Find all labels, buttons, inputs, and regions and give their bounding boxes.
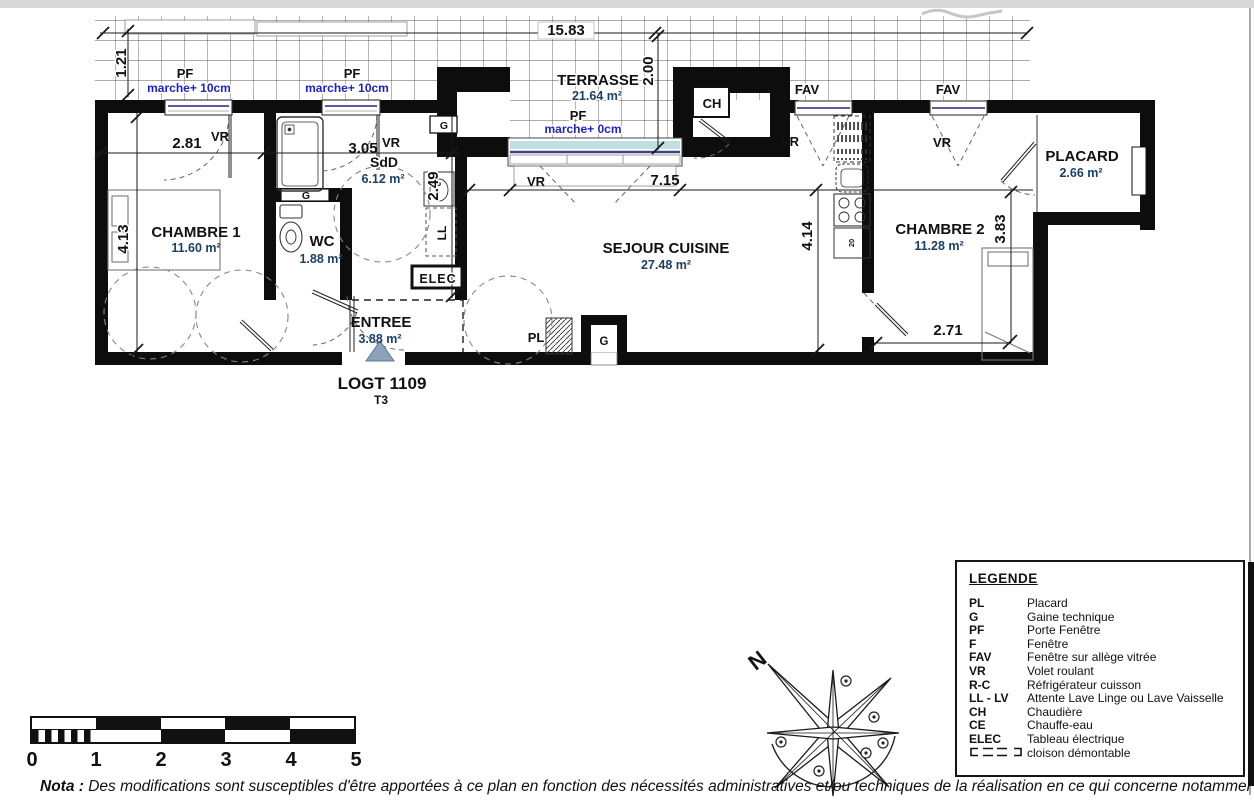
nota-text: Nota : Des modifications sont susceptibl… [40, 778, 1252, 796]
marche-note: marche+ 10cm [147, 81, 231, 95]
g-label: G [302, 190, 310, 202]
legend-item: R-CRéfrigérateur cuisson [969, 679, 1237, 693]
dim-7-15: 7.15 [650, 172, 679, 189]
scale-bar: 0 1 2 3 4 5 [30, 716, 356, 775]
room-name-terrasse: TERRASSE [557, 72, 639, 89]
scale-tick-label: 1 [90, 749, 101, 772]
north-label: N [743, 646, 771, 675]
room-name-chambre2: CHAMBRE 2 [895, 221, 984, 238]
pf-window-sdd [322, 100, 380, 115]
dim-2-00: 2.00 [640, 56, 657, 85]
hall-closet-hatch [546, 318, 572, 354]
fav-label: FAV [936, 82, 961, 97]
fav-label: FAV [795, 82, 820, 97]
legend-item: PFPorte Fenêtre [969, 624, 1237, 638]
pf-label: PF [570, 108, 587, 123]
legend-title: LEGENDE [969, 571, 1237, 586]
dim-4-14: 4.14 [799, 221, 816, 251]
shower-icon [277, 117, 323, 191]
legend-item: VRVolet roulant [969, 665, 1237, 679]
legend-item: FAVFenêtre sur allège vitrée [969, 651, 1237, 665]
room-name-wc: WC [310, 233, 335, 250]
dim-1-21: 1.21 [113, 48, 130, 77]
pf-label: PF [344, 66, 361, 81]
room-area-placard: 2.66 m² [1059, 166, 1102, 180]
pf-label: PF [177, 66, 194, 81]
pl-label: PL [528, 330, 545, 345]
room-area-sejour: 27.48 m² [641, 258, 691, 272]
legend-item: PLPlacard [969, 597, 1237, 611]
legend-item: CEChauffe-eau [969, 719, 1237, 733]
room-name-entree: ENTREE [351, 314, 412, 331]
scale-bar-strip [30, 716, 356, 744]
pf-window-chambre1 [165, 100, 232, 115]
legend-item: ELECTableau électrique [969, 733, 1237, 747]
dim-15-83: 15.83 [547, 22, 585, 39]
vr-label: VR [781, 134, 800, 149]
ch-label: CH [703, 96, 722, 111]
room-name-chambre1: CHAMBRE 1 [151, 224, 240, 241]
vr-label: VR [933, 135, 952, 150]
room-area-chambre1: 11.60 m² [171, 241, 220, 255]
floorplan-page: N CHAMBRE 1 11.60 m² WC 1.88 m² SdD 6.12… [0, 0, 1254, 800]
scale-tick-label: 4 [285, 749, 296, 772]
scale-tick-label: 0 [26, 749, 37, 772]
dim-4-13: 4.13 [115, 224, 132, 253]
vr-label: VR [382, 135, 401, 150]
marche-note: marche+ 10cm [305, 81, 389, 95]
room-name-sejour: SEJOUR CUISINE [603, 240, 730, 257]
compass-rose: N [743, 646, 899, 796]
legend-item: FFenêtre [969, 638, 1237, 652]
cloison-demontable-symbol [969, 747, 1027, 761]
room-area-entree: 3.88 m² [358, 332, 401, 346]
dim-2-71: 2.71 [933, 322, 962, 339]
legend-item: LL - LVAttente Lave Linge ou Lave Vaisse… [969, 692, 1237, 706]
dim-2-49: 2.49 [425, 171, 442, 200]
page-edge [1248, 8, 1254, 795]
g-label: G [440, 120, 448, 132]
fav-window-chambre2 [930, 101, 987, 115]
marche-note: marche+ 0cm [544, 122, 621, 136]
lot-type: T3 [374, 393, 388, 407]
room-area-sdd: 6.12 m² [361, 172, 404, 186]
lot-title: LOGT 1109 [338, 374, 427, 393]
scale-tick-label: 5 [350, 749, 361, 772]
room-area-terrasse: 21.64 m² [572, 89, 622, 103]
dim-3-05: 3.05 [348, 140, 377, 157]
scale-tick-label: 3 [220, 749, 231, 772]
legend-box: LEGENDE PLPlacard GGaine technique PFPor… [955, 560, 1245, 777]
elec-label: ELEC [419, 272, 456, 286]
dim-3-83: 3.83 [992, 214, 1009, 243]
room-area-chambre2: 11.28 m² [914, 239, 963, 253]
room-area-wc: 1.88 m² [299, 252, 342, 266]
scale-tick-label: 2 [155, 749, 166, 772]
scale-bar-numbers: 0 1 2 3 4 5 [30, 749, 356, 775]
vr-label: VR [211, 129, 230, 144]
dim-2-81: 2.81 [172, 135, 201, 152]
ll-label: LL [435, 226, 449, 241]
faint-handwriting [922, 10, 1002, 17]
cabinet-width-label: 20 [847, 239, 856, 247]
vr-label: VR [527, 174, 546, 189]
g-label: G [600, 336, 609, 348]
fav-window-sejour [795, 101, 852, 115]
room-name-placard: PLACARD [1045, 148, 1118, 165]
legend-item: GGaine technique [969, 611, 1237, 625]
legend-item: cloison démontable [969, 747, 1237, 761]
legend-item: CHChaudière [969, 706, 1237, 720]
toilet-icon [280, 205, 302, 252]
